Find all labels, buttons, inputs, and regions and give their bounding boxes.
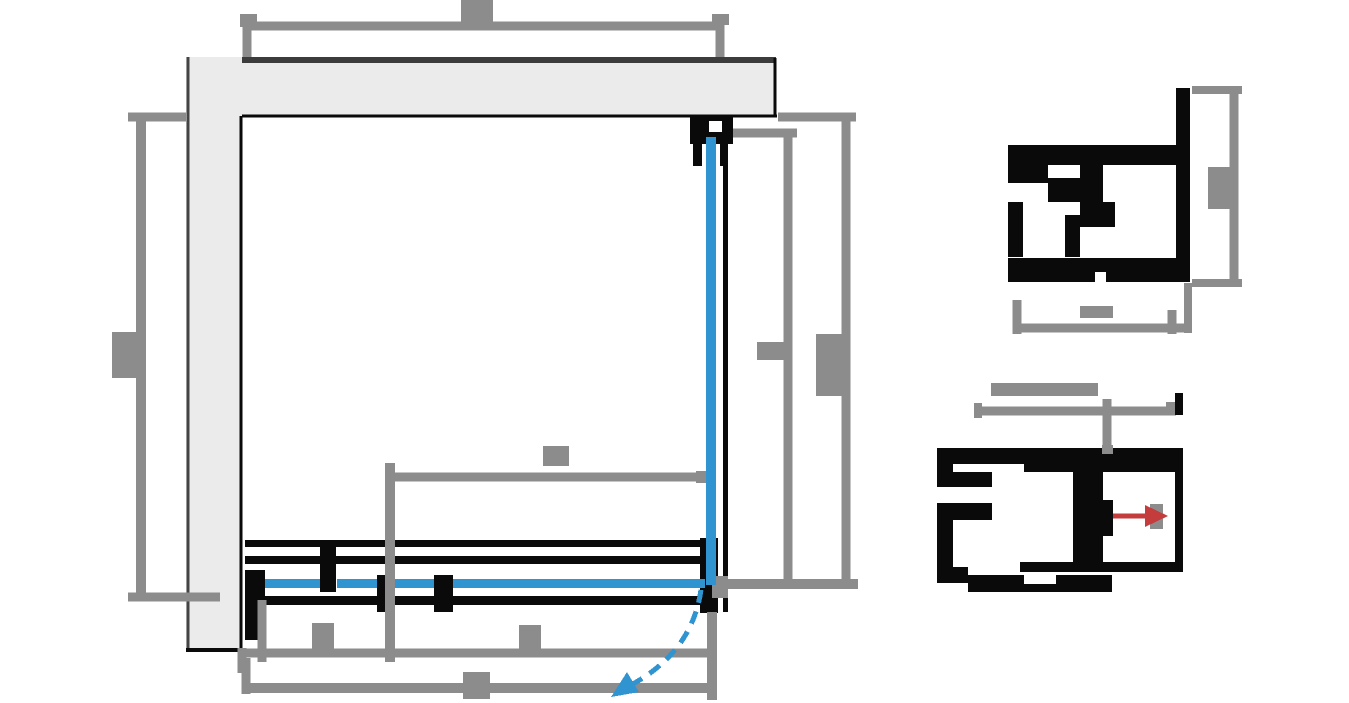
door-roller-1 — [320, 540, 336, 592]
dim-label-bottom1b-blob — [519, 625, 541, 651]
d2-right-edge — [1175, 448, 1183, 572]
d1-label-bottom-blob — [1080, 306, 1113, 318]
technical-drawing-canvas — [0, 0, 1349, 703]
d2-tick-right-black — [1175, 393, 1183, 415]
dim-label-right-inner-blob — [757, 342, 788, 360]
d1-window-right-wall — [1065, 215, 1080, 257]
d1-bottom-gap — [1095, 272, 1106, 282]
dim-label-right-outer-blob — [816, 334, 847, 396]
d1-mid-stub — [1080, 165, 1103, 227]
dim-label-left-blob — [112, 332, 143, 378]
door-roller-3 — [434, 575, 453, 612]
door-rail-top-outer — [245, 540, 718, 547]
d2-inner-block-2 — [953, 503, 992, 520]
dim-top-tick-right — [712, 14, 729, 25]
d1-label-right-blob — [1208, 167, 1230, 209]
d2-bottom-bar-upper — [1020, 562, 1183, 572]
d1-right-bar — [1176, 88, 1190, 280]
glass-clamp-left — [693, 144, 702, 166]
dim-label-bottom1a-blob — [312, 623, 334, 651]
glass-side-panel — [706, 137, 716, 585]
glass-clamp-right — [720, 144, 728, 166]
d2-top-bar-right-thick — [1024, 448, 1177, 472]
d2-left-edge-upper — [937, 448, 953, 487]
glass-door-seg2 — [337, 579, 377, 588]
wall-top-edge-strip — [186, 57, 776, 63]
dim-label-mid-blob — [543, 446, 569, 466]
d1-mid-stub-bump — [1103, 202, 1115, 227]
wall-top — [186, 57, 776, 116]
d1-arm-hook — [1008, 165, 1048, 183]
dim-top-tick-left — [240, 14, 257, 27]
d2-tick-right-gray — [1166, 402, 1176, 413]
d2-bottom-gap — [1024, 575, 1056, 584]
door-rail-bottom — [245, 596, 718, 605]
d2-inner-block-1 — [953, 472, 992, 487]
d2-tick-mid-foot — [1102, 445, 1113, 454]
wall-left — [186, 57, 242, 650]
d1-hook-step — [1048, 178, 1080, 202]
d1-top-arm — [1008, 145, 1178, 165]
glass-door-seg4 — [453, 579, 705, 588]
dim-label-top-blob — [461, 0, 493, 26]
glass-door-seg3 — [395, 579, 434, 588]
d2-label-long-blob — [991, 383, 1098, 396]
corner-bracket-notch — [709, 121, 722, 132]
drawing-svg — [0, 0, 1349, 703]
d2-left-edge-lower — [937, 503, 953, 583]
glass-door-seg1 — [265, 579, 320, 588]
dim-label-bottom2-blob — [463, 672, 490, 699]
side-panel-profile — [723, 117, 728, 612]
door-rail-top-inner — [245, 556, 718, 564]
d1-left-edge — [1008, 202, 1023, 257]
d2-divider-bump — [1097, 500, 1113, 536]
d2-left-foot — [953, 567, 968, 583]
